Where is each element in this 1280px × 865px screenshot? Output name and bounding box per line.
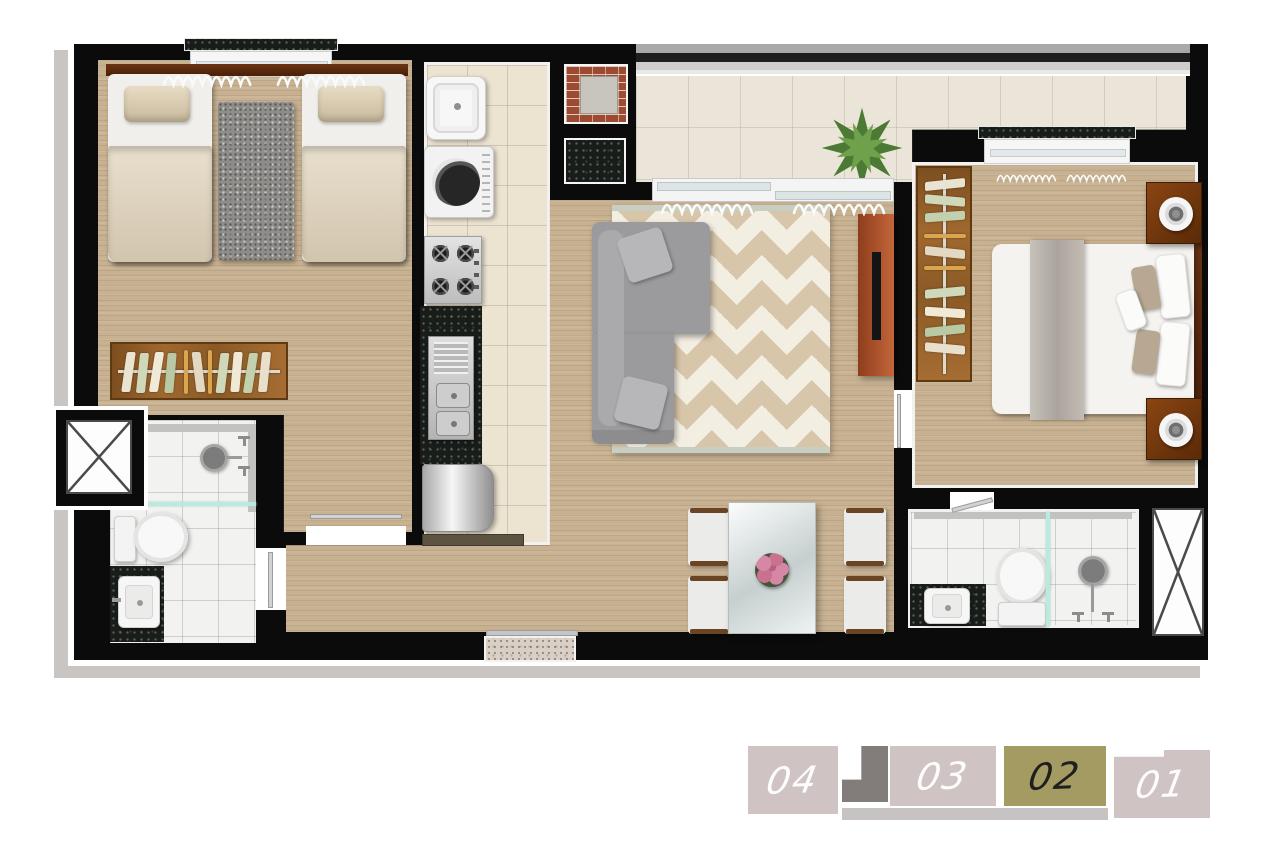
sliding-door-pane [775, 191, 891, 200]
shower-wall [146, 424, 256, 432]
window-pane [990, 149, 1126, 157]
shower-faucet-icon [1102, 612, 1114, 622]
refrigerator [422, 464, 494, 532]
unit-tab-03[interactable]: 03 [890, 746, 996, 806]
entrance-door[interactable] [486, 630, 578, 636]
sofa-armrest [592, 430, 674, 444]
unit-tab-label: 03 [913, 754, 972, 799]
master-bedroom-window [984, 139, 1130, 164]
washing-machine [424, 146, 494, 218]
washbasin [924, 588, 970, 624]
clothes-item [216, 353, 230, 393]
shower-arm [226, 456, 242, 459]
shower-glass-partition [146, 502, 256, 506]
balcony-sliding-door[interactable] [652, 178, 894, 202]
open-wardrobe [110, 342, 288, 400]
toilet-tank [998, 602, 1046, 626]
master-bedroom-door[interactable] [897, 394, 901, 448]
selector-underline-bar [842, 808, 1108, 820]
unit-selector: 04 03 02 01 [744, 742, 1214, 824]
shower-faucet-icon [238, 436, 250, 446]
clothes-item [925, 194, 965, 206]
counter-shelf [422, 534, 524, 546]
shag-rug [218, 102, 294, 260]
hanger-icon [924, 266, 966, 270]
lamp-icon [1159, 197, 1193, 231]
basin-faucet [112, 598, 121, 602]
clothes-item [136, 353, 149, 393]
hanger-icon [208, 350, 212, 394]
clothes-item [243, 353, 258, 393]
curtain-icon [660, 200, 756, 216]
flower-centerpiece-icon [755, 553, 789, 587]
tv-icon [872, 252, 881, 340]
shower-arm [1091, 584, 1094, 612]
bbq-concrete-top [580, 76, 618, 114]
stairs-icon [842, 746, 888, 802]
ventilation-shaft-icon [1152, 508, 1204, 636]
shower-faucet-icon [238, 466, 250, 476]
curtain-icon [1066, 170, 1128, 185]
unit-tab-01[interactable]: 01 [1114, 750, 1210, 818]
dining-chair [844, 508, 886, 566]
burner-icon [430, 276, 451, 297]
burner-icon [455, 243, 476, 264]
ventilation-shaft-icon [66, 420, 132, 494]
nightstand [1146, 398, 1202, 460]
balcony-granite-counter [564, 138, 626, 184]
hall-door[interactable] [310, 514, 402, 519]
clothes-item [230, 352, 242, 392]
window-sill [978, 126, 1136, 139]
utility-sink [426, 76, 486, 140]
shower-head-icon [200, 444, 228, 472]
washbasin [118, 576, 160, 628]
entrance-threshold [484, 636, 576, 662]
clothes-item [164, 353, 176, 393]
kitchen-sink [428, 336, 474, 440]
sink-basin [436, 383, 470, 408]
unit-tab-label: 01 [1132, 762, 1191, 807]
shower-head-icon [1078, 556, 1108, 586]
hanger-icon [924, 234, 966, 238]
burner-icon [455, 276, 476, 297]
curtain-icon [162, 72, 254, 88]
bed-throw-blanket [1030, 240, 1084, 420]
open-wardrobe [916, 166, 972, 382]
unit-tab-02-selected[interactable]: 02 [1004, 746, 1106, 806]
shower-faucet-icon [1072, 612, 1084, 622]
shower-glass-partition [1046, 512, 1050, 626]
floor-plan: 04 03 02 01 [0, 0, 1280, 865]
window-sill [184, 38, 338, 51]
curtain-icon [276, 72, 368, 88]
toilet-tank [114, 516, 136, 562]
hanger-icon [184, 350, 188, 394]
nightstand [1146, 182, 1202, 244]
hall-door-opening [306, 526, 406, 545]
bed-pillow [1155, 321, 1190, 387]
unit-tab-04[interactable]: 04 [748, 746, 838, 814]
unit-tab-label: 02 [1025, 754, 1084, 799]
dining-chair [688, 576, 730, 634]
lamp-icon [1159, 413, 1193, 447]
curtain-icon [792, 200, 888, 216]
dining-chair [688, 508, 730, 566]
sliding-door-pane [657, 182, 771, 191]
bathroom-1-door[interactable] [268, 552, 273, 608]
dining-chair [844, 576, 886, 634]
pillow [124, 86, 190, 122]
shower-wall [914, 512, 1132, 519]
sink-basin [436, 411, 470, 436]
cooktop [424, 236, 482, 304]
pillow [318, 86, 384, 122]
toilet [996, 548, 1048, 604]
toilet [134, 512, 188, 562]
curtain-icon [996, 170, 1058, 185]
clothes-item [925, 211, 965, 223]
blanket [302, 146, 406, 262]
clothes-item [925, 307, 965, 319]
balcony-railing [636, 44, 1190, 76]
clothes-item [925, 286, 965, 298]
unit-tab-label: 04 [763, 758, 822, 803]
burner-icon [430, 243, 451, 264]
rug-edge [612, 447, 830, 453]
clothes-item [925, 342, 965, 354]
blanket [108, 146, 212, 262]
